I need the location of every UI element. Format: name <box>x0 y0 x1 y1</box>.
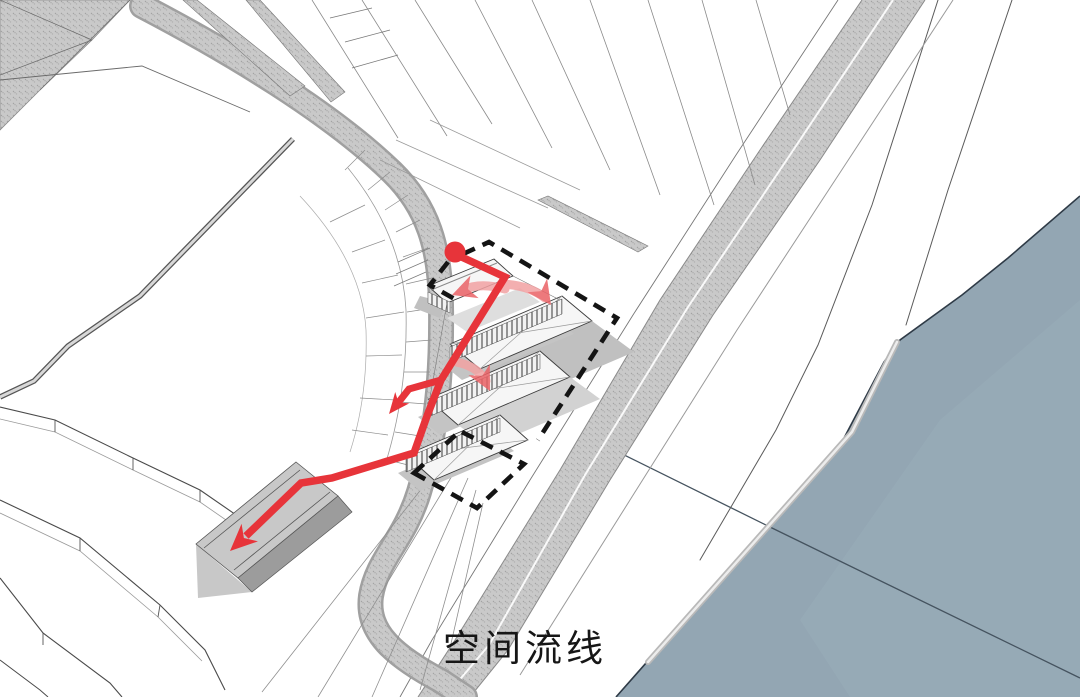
diagram-caption: 空间流线 <box>443 627 607 670</box>
route-start-point <box>445 242 466 263</box>
circulation-diagram: 空间流线 <box>0 0 1080 697</box>
diagram-canvas: 空间流线 <box>0 0 1080 697</box>
